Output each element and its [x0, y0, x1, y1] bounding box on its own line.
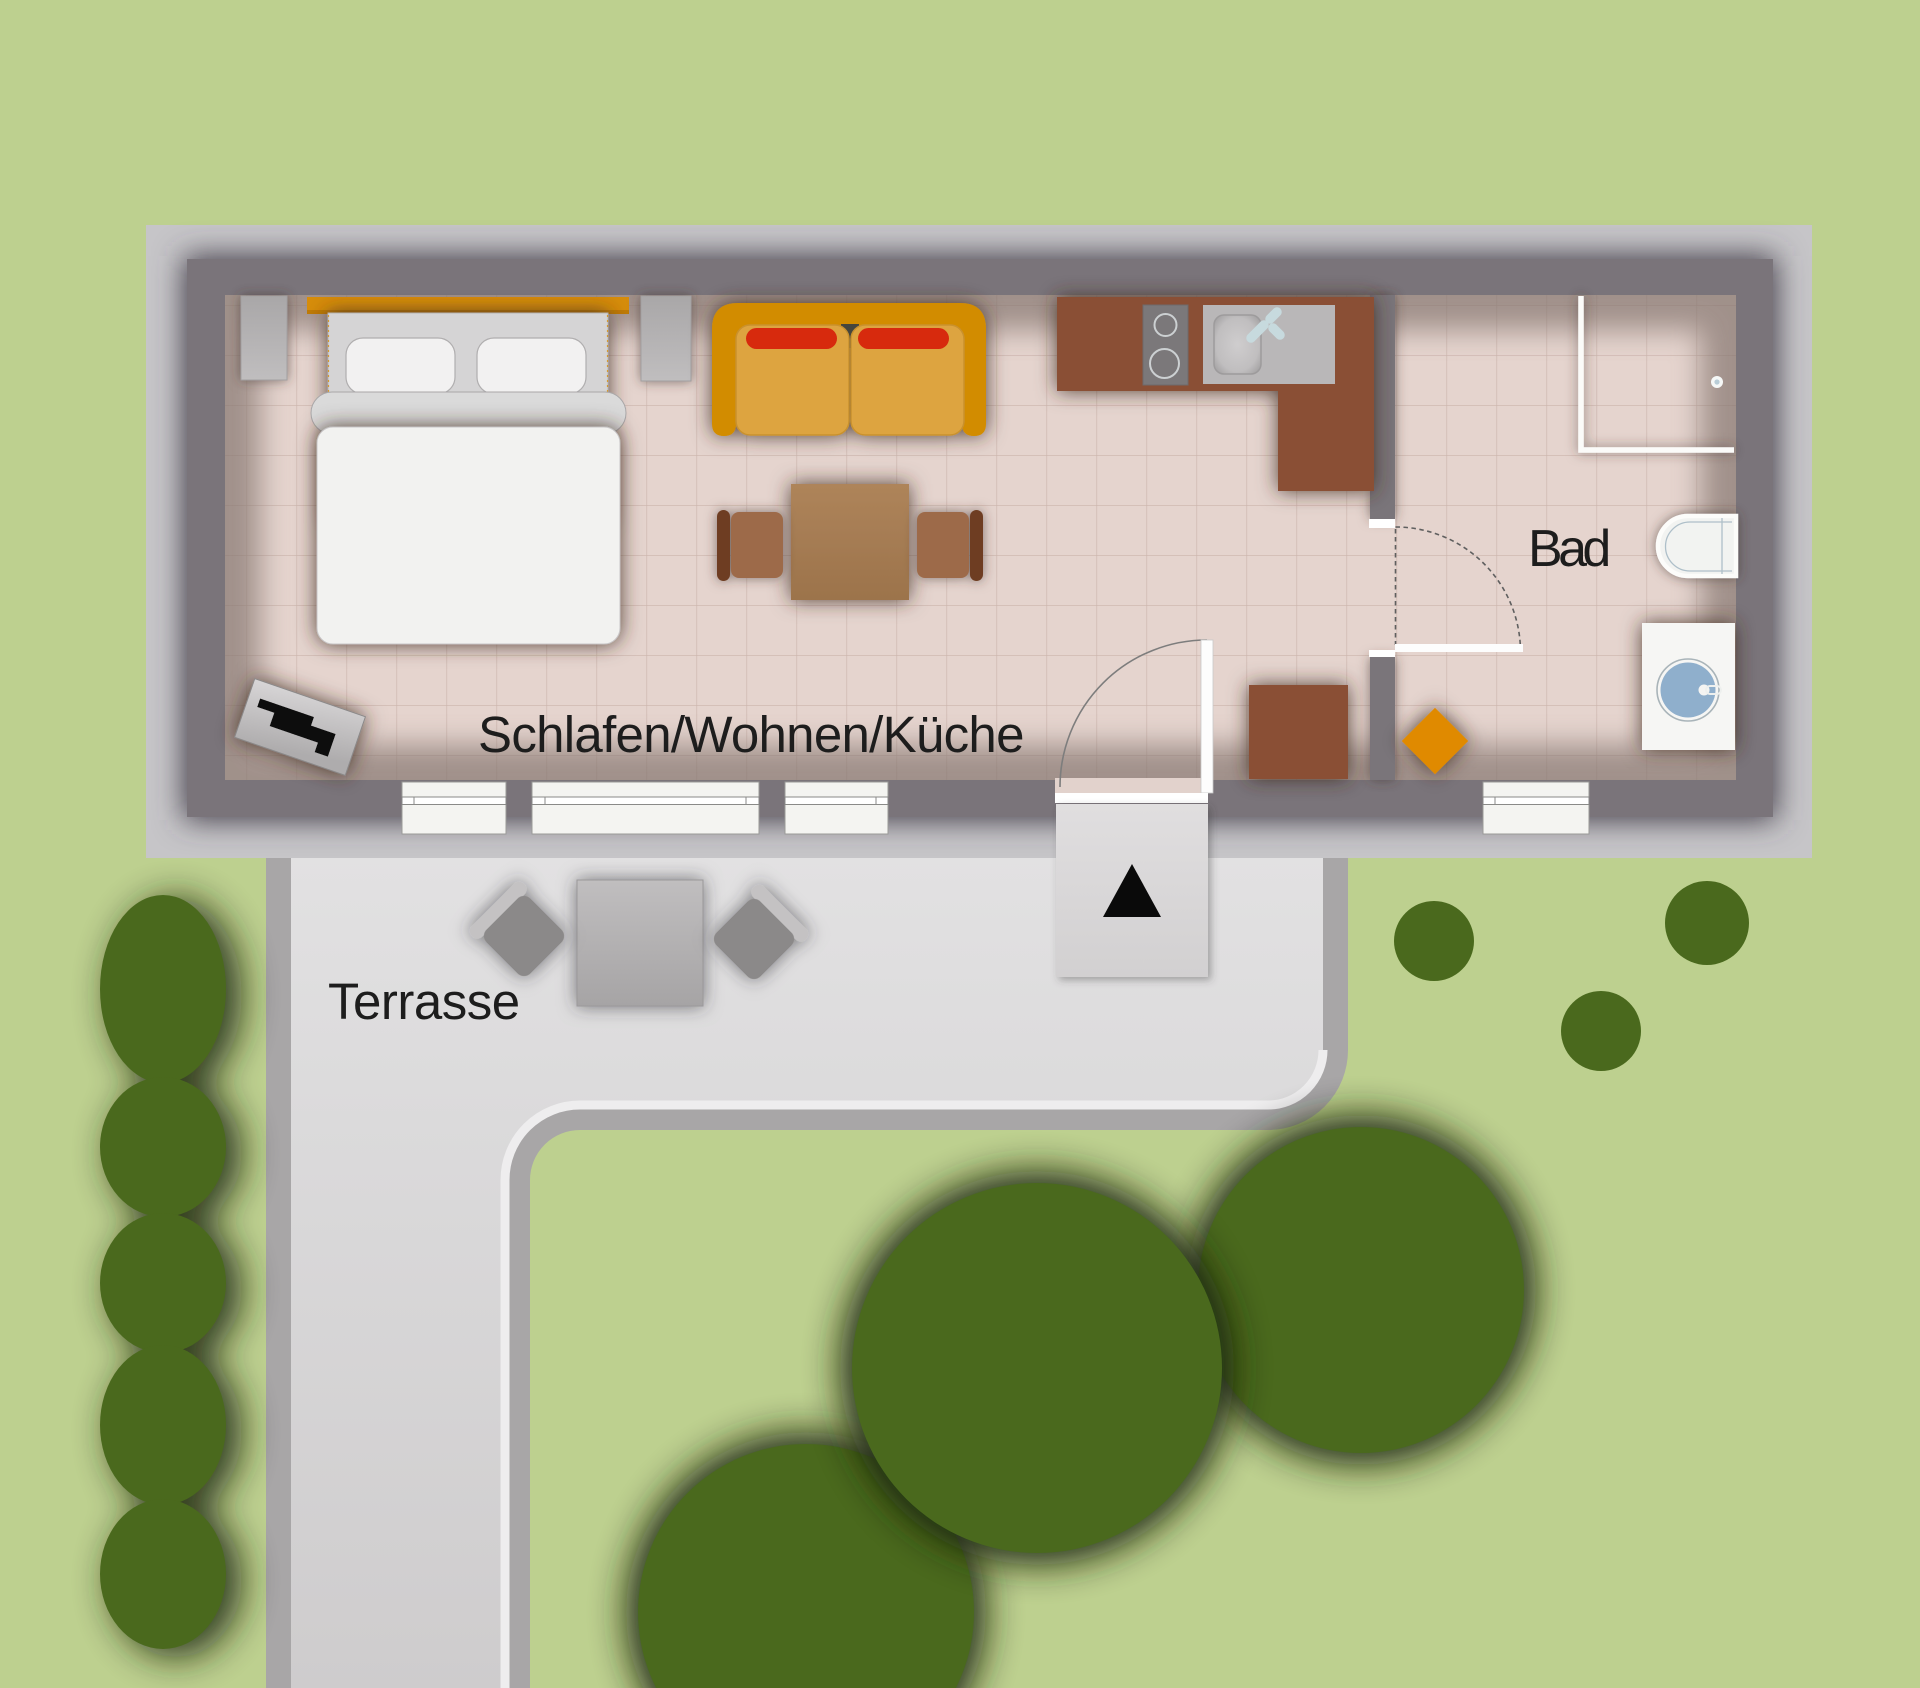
- svg-text:Schlafen/Wohnen/Küche: Schlafen/Wohnen/Küche: [478, 706, 1024, 763]
- svg-text:Bad: Bad: [1528, 520, 1608, 578]
- svg-text:Terrasse: Terrasse: [328, 973, 520, 1030]
